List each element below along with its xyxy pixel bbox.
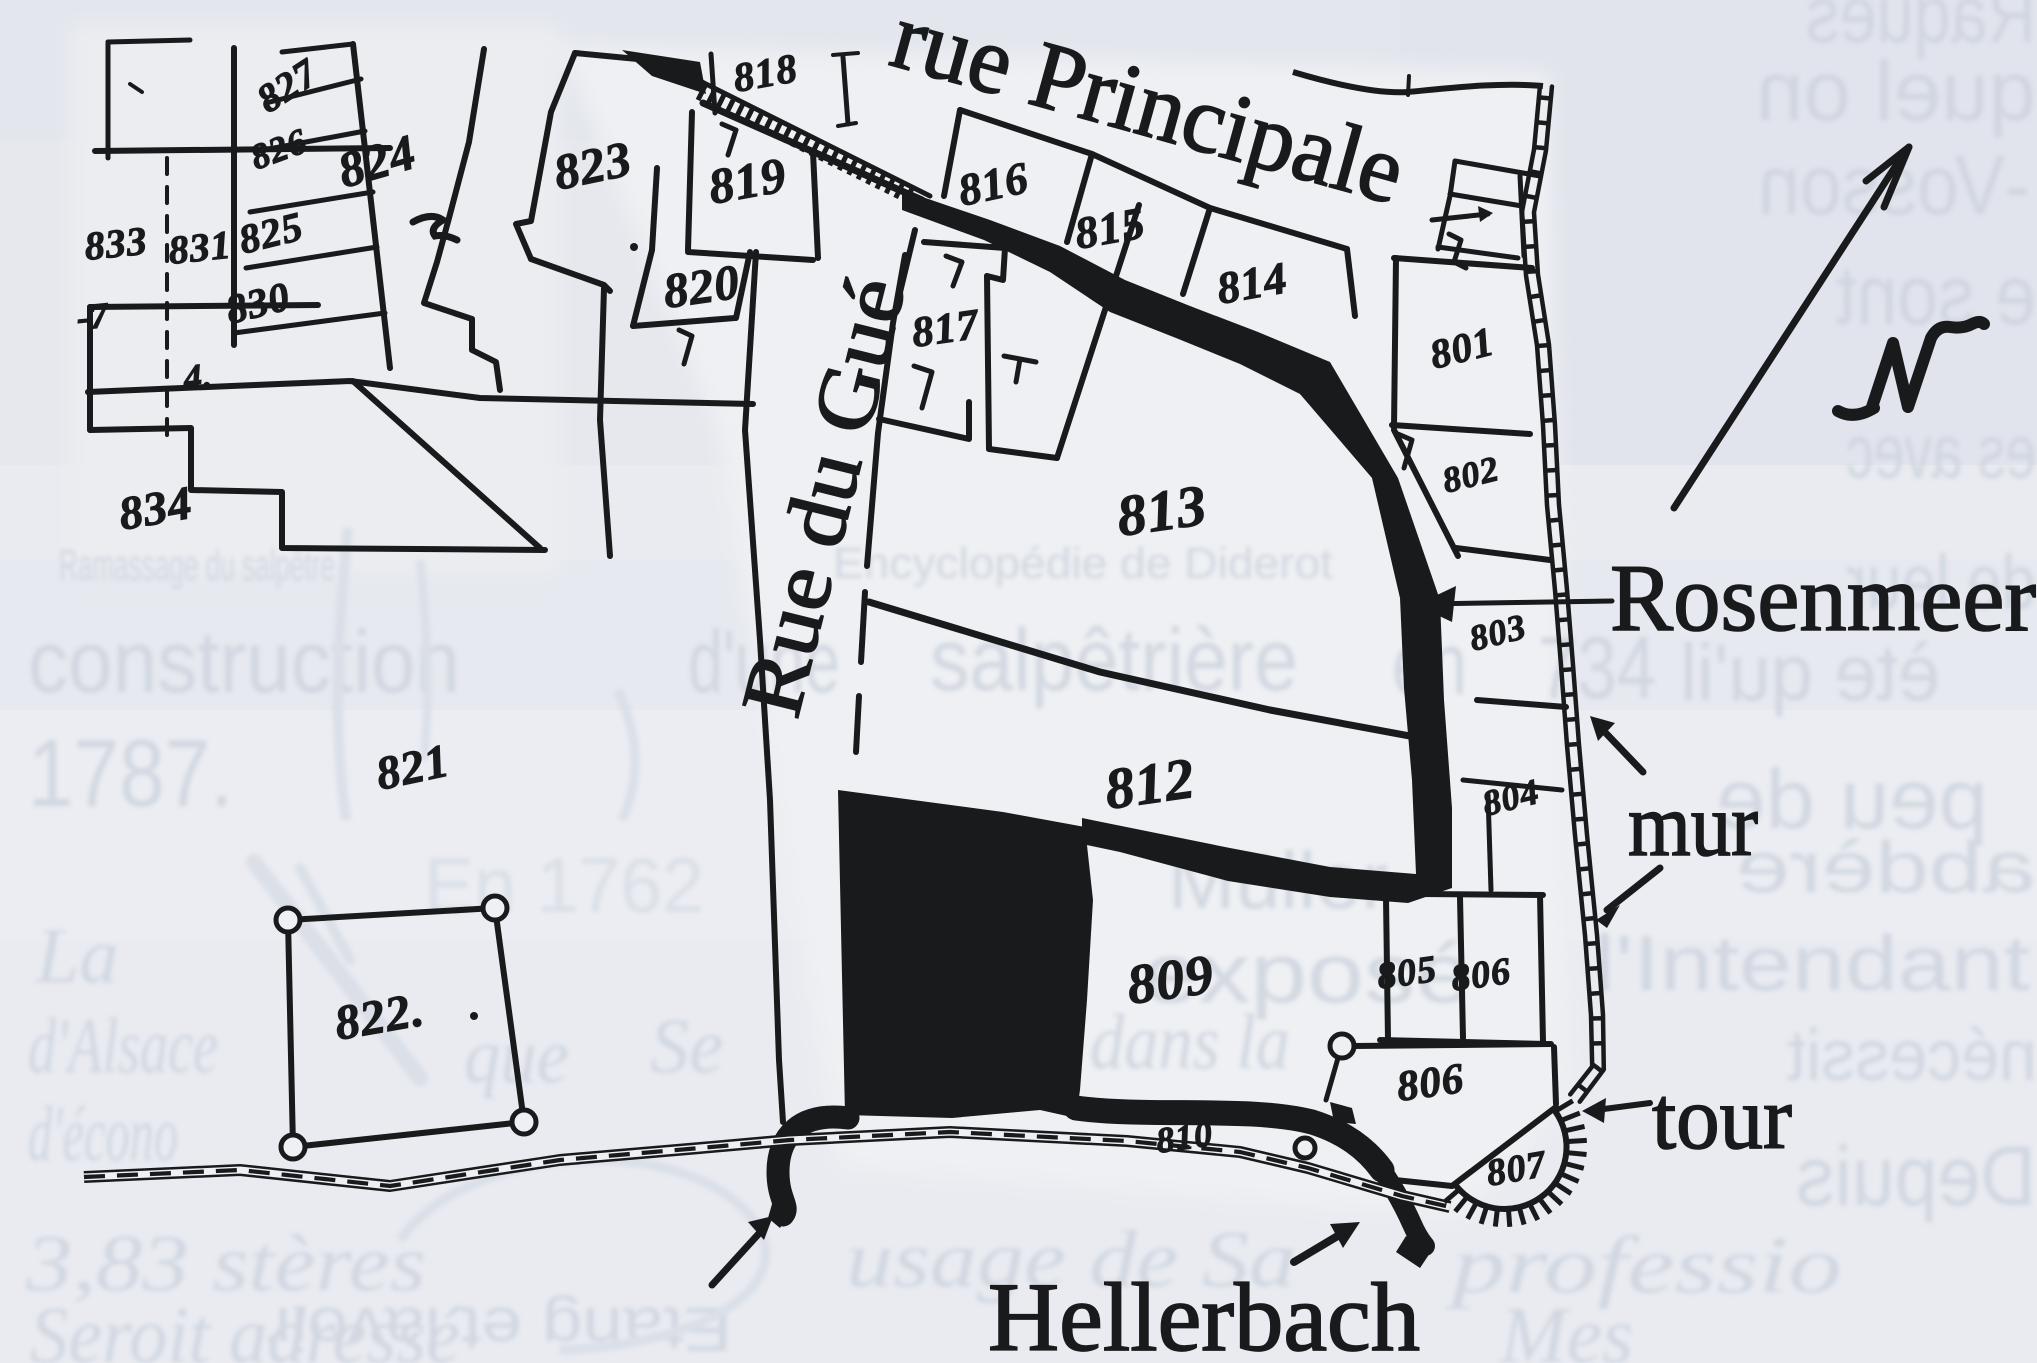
svg-text:es avec: es avec <box>1846 410 2036 495</box>
svg-text:1787.: 1787. <box>28 720 233 827</box>
svg-text:4.: 4. <box>181 355 215 398</box>
svg-text:d'Alsace: d'Alsace <box>28 1002 218 1089</box>
svg-text:833: 833 <box>82 218 149 269</box>
svg-text:tour: tour <box>1652 1069 1792 1168</box>
svg-text:809: 809 <box>1123 943 1218 1017</box>
svg-text:812: 812 <box>1101 745 1199 822</box>
svg-text:820: 820 <box>660 254 743 319</box>
svg-text:810: 810 <box>1154 1113 1216 1161</box>
svg-text:Mes: Mes <box>1499 1292 1633 1363</box>
svg-text:quel on: quel on <box>1756 44 2036 138</box>
svg-text:-7: -7 <box>75 295 112 338</box>
svg-text:Rosenmeer: Rosenmeer <box>1610 545 2036 651</box>
svg-text:817: 817 <box>909 301 983 357</box>
svg-text:d'écono: d'écono <box>28 1090 178 1177</box>
svg-text:En 1762: En 1762 <box>424 841 704 929</box>
svg-text:l'Intendant: l'Intendant <box>1594 919 2030 1007</box>
svg-text:Etang et lavoir: Etang et lavoir <box>267 1294 732 1363</box>
svg-text:806: 806 <box>1394 1055 1467 1111</box>
svg-text:Encyclopédie de Diderot: Encyclopédie de Diderot <box>833 539 1333 588</box>
svg-text:La: La <box>35 912 118 999</box>
svg-text:mur: mur <box>1628 776 1758 875</box>
svg-text:Se: Se <box>650 1002 724 1089</box>
svg-text:831: 831 <box>166 222 233 273</box>
svg-text:abdère: abdère <box>1736 828 2036 908</box>
svg-text:813: 813 <box>1113 472 1211 549</box>
svg-text:Hellerbach: Hellerbach <box>988 1264 1420 1363</box>
svg-text:806: 806 <box>1448 950 1513 1000</box>
svg-text:Depuis: Depuis <box>1796 1129 2036 1223</box>
svg-text:nécessit: nécessit <box>1787 1016 2037 1096</box>
svg-text:805: 805 <box>1374 948 1439 998</box>
svg-text:salpêtrière: salpêtrière <box>930 610 1298 709</box>
svg-text:construction: construction <box>28 612 460 711</box>
